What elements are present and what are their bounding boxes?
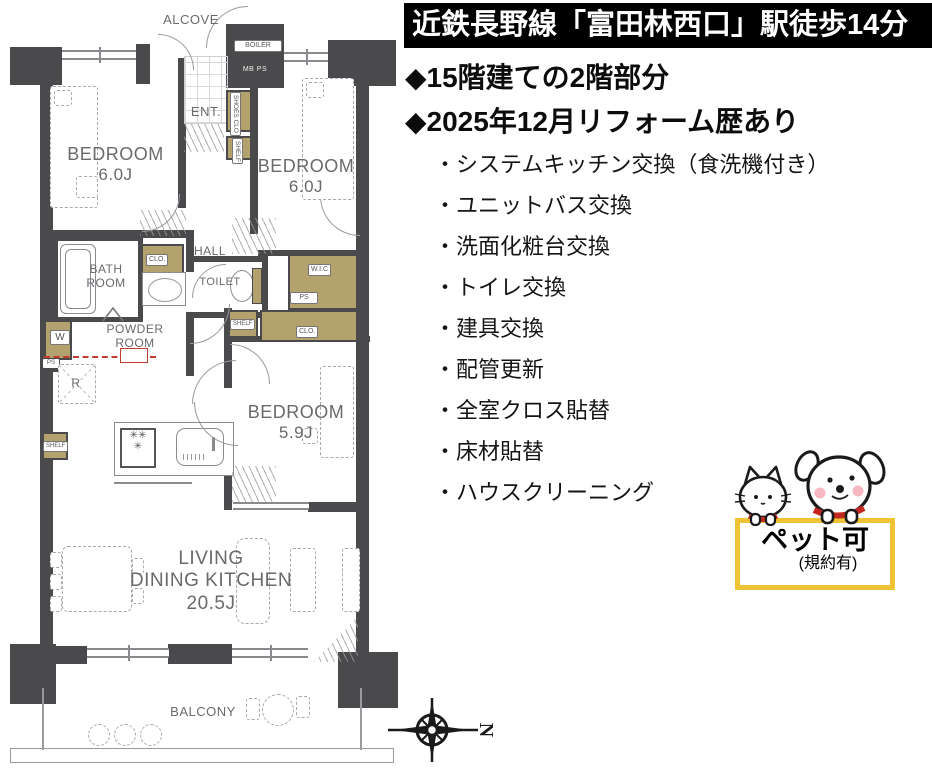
wall-segment	[168, 644, 232, 664]
door-arc	[230, 344, 270, 384]
chair	[50, 552, 62, 568]
bedroom1-name: BEDROOM	[58, 144, 173, 165]
planter	[88, 724, 110, 746]
ldk-label: LIVING DINING KITCHEN 20.5J	[126, 548, 296, 615]
reform-item-text: システムキッチン交換（食洗機付き）	[456, 147, 829, 179]
bathroom-label: BATH ROOM	[74, 262, 138, 290]
bedroom1-size: 6.0J	[58, 165, 173, 185]
bullet-marker: ・	[434, 475, 456, 507]
powder-text1: POWDER	[90, 322, 180, 336]
window	[232, 648, 308, 658]
bedroom3-name: BEDROOM	[236, 402, 356, 423]
hall-closet-label: CLO.	[146, 254, 168, 266]
toilet-cistern	[252, 268, 262, 304]
furniture-outline	[54, 90, 72, 106]
bath-folding-door	[102, 306, 124, 322]
balcony-chair	[246, 698, 260, 720]
bullet-marker: ・	[434, 229, 456, 261]
wall-segment	[10, 644, 56, 704]
stove: ✳✳✳	[120, 428, 156, 468]
bullet-marker: ・	[434, 393, 456, 425]
furniture-outline	[306, 82, 324, 98]
hatch-marks	[140, 210, 186, 236]
washer-label: W	[50, 330, 70, 345]
bullet-marker: ・	[434, 188, 456, 220]
shelf-text: SHELF	[234, 141, 241, 162]
reform-item-text: ユニットバス交換	[456, 188, 632, 220]
powder-sink-bowl	[148, 278, 182, 302]
window-tick	[99, 47, 101, 63]
reform-item: ・建具交換	[434, 306, 829, 347]
bedroom2-label: BEDROOM 6.0J	[250, 156, 362, 197]
counter-edge-line	[114, 482, 192, 484]
ldk-size: 20.5J	[126, 593, 296, 615]
door-arc	[158, 34, 194, 70]
mb-ps-label: MB PS	[232, 66, 278, 74]
chair	[50, 596, 62, 612]
window	[233, 502, 309, 510]
door-arc	[320, 196, 360, 236]
alcove-label: ALCOVE	[156, 12, 226, 27]
reform-item: ・トイレ交換	[434, 265, 829, 306]
clo-text: CLO	[232, 120, 239, 133]
wall-segment	[136, 44, 150, 84]
bullet-marker: ・	[434, 434, 456, 466]
floor-info-headline: ◆15階建ての2階部分	[405, 56, 669, 96]
furniture-outline	[342, 548, 360, 612]
pet-allowed-title: ペット可	[740, 525, 890, 556]
cat-illustration	[733, 464, 793, 526]
drainer	[183, 454, 207, 460]
dining-table	[62, 546, 132, 612]
powder-sink	[142, 272, 186, 306]
reform-info-headline: ◆2025年12月リフォーム歴あり	[405, 100, 799, 140]
reform-item: ・ユニットバス交換	[434, 183, 829, 224]
reform-item-text: 床材貼替	[456, 434, 544, 466]
window-tick	[306, 49, 308, 65]
shoes-closet-label: SHOES CLO	[230, 92, 241, 136]
bullet-marker: ・	[434, 311, 456, 343]
hall-label: HALL	[190, 244, 230, 258]
bullet-marker: ・	[434, 352, 456, 384]
reform-item-text: 建具交換	[456, 311, 544, 343]
window	[284, 52, 328, 62]
dog-illustration	[792, 444, 888, 526]
balcony-table	[262, 694, 294, 726]
balcony-chair	[296, 696, 310, 718]
reform-item: ・配管更新	[434, 347, 829, 388]
reform-items-list: ・システムキッチン交換（食洗機付き） ・ユニットバス交換 ・洗面化粧台交換 ・ト…	[434, 142, 829, 511]
toilet-label: TOILET	[194, 276, 246, 289]
reform-item-text: ハウスクリーニング	[456, 475, 654, 507]
boiler-text: BOILER	[245, 42, 271, 49]
window-tick	[128, 645, 130, 661]
wall-segment	[53, 646, 87, 664]
balcony-edge	[10, 748, 394, 763]
bedroom2-size: 6.0J	[250, 177, 362, 197]
window	[87, 648, 169, 658]
window	[62, 50, 136, 60]
reform-item: ・洗面化粧台交換	[434, 224, 829, 265]
entry-shelf-label: SHELF	[232, 138, 243, 164]
bath-text1: BATH	[74, 262, 138, 276]
compass-rose: N	[386, 694, 498, 764]
station-banner: 近鉄長野線「富田林西口」駅徒歩14分	[404, 3, 932, 48]
reform-item-text: 全室クロス貼替	[456, 393, 610, 425]
pet-allowed-subtitle: (規約有)	[766, 556, 890, 572]
planter	[114, 724, 136, 746]
hatch-marks	[232, 218, 276, 254]
bullet-marker: ・	[434, 270, 456, 302]
balcony-rail	[42, 688, 44, 750]
floorplan: BOILER MB PS SHOES CLO SHELF CLO. W.I.C …	[8, 4, 412, 766]
compass-north-letter: N	[475, 723, 497, 738]
wall-segment	[10, 47, 62, 85]
reform-item-text: トイレ交換	[456, 270, 566, 302]
bedroom3-label: BEDROOM 5.9J	[236, 402, 356, 443]
reform-item-text: 洗面化粧台交換	[456, 229, 610, 261]
walk-in-closet-label: W.I.C	[308, 264, 331, 276]
reform-item-text: 配管更新	[456, 352, 544, 384]
balcony-label: BALCONY	[158, 704, 248, 719]
bullet-marker: ・	[434, 147, 456, 179]
bath-text2: ROOM	[74, 276, 138, 290]
bedroom1-label: BEDROOM 6.0J	[58, 144, 173, 185]
chair	[50, 574, 62, 590]
mid-shelf-label: SHELF	[230, 319, 255, 330]
window-tick	[270, 645, 272, 661]
hatch-marks	[184, 124, 224, 152]
pipe-space-mid: PS	[290, 292, 318, 304]
shoes-text: SHOES	[232, 95, 239, 118]
powder-text2: ROOM	[90, 336, 180, 350]
kitchen-shelf-label: SHELF	[43, 441, 68, 452]
pet-allowed-box: ペット可 (規約有)	[735, 518, 895, 590]
planter	[140, 724, 162, 746]
reform-item: ・システムキッチン交換（食洗機付き）	[434, 142, 829, 183]
bedroom3-size: 5.9J	[236, 423, 356, 443]
powder-room-label: POWDER ROOM	[90, 322, 180, 350]
ldk-text1: LIVING	[126, 548, 296, 570]
wall-segment	[308, 502, 356, 512]
entrance-label: ENT.	[184, 104, 228, 119]
bedroom3-closet-label: CLO.	[296, 326, 318, 338]
hatch-marks	[232, 466, 276, 502]
ldk-text2: DINING KITCHEN	[126, 570, 296, 592]
balcony-rail	[360, 688, 362, 750]
bedroom2-name: BEDROOM	[250, 156, 362, 177]
fridge-label: R	[66, 376, 86, 390]
hatch-marks	[314, 616, 358, 662]
flyer-page: { "banner": { "text": "近鉄長野線「富田林西口」駅徒歩14…	[0, 0, 932, 768]
wall-segment	[262, 256, 268, 318]
reform-item: ・全室クロス貼替	[434, 388, 829, 429]
